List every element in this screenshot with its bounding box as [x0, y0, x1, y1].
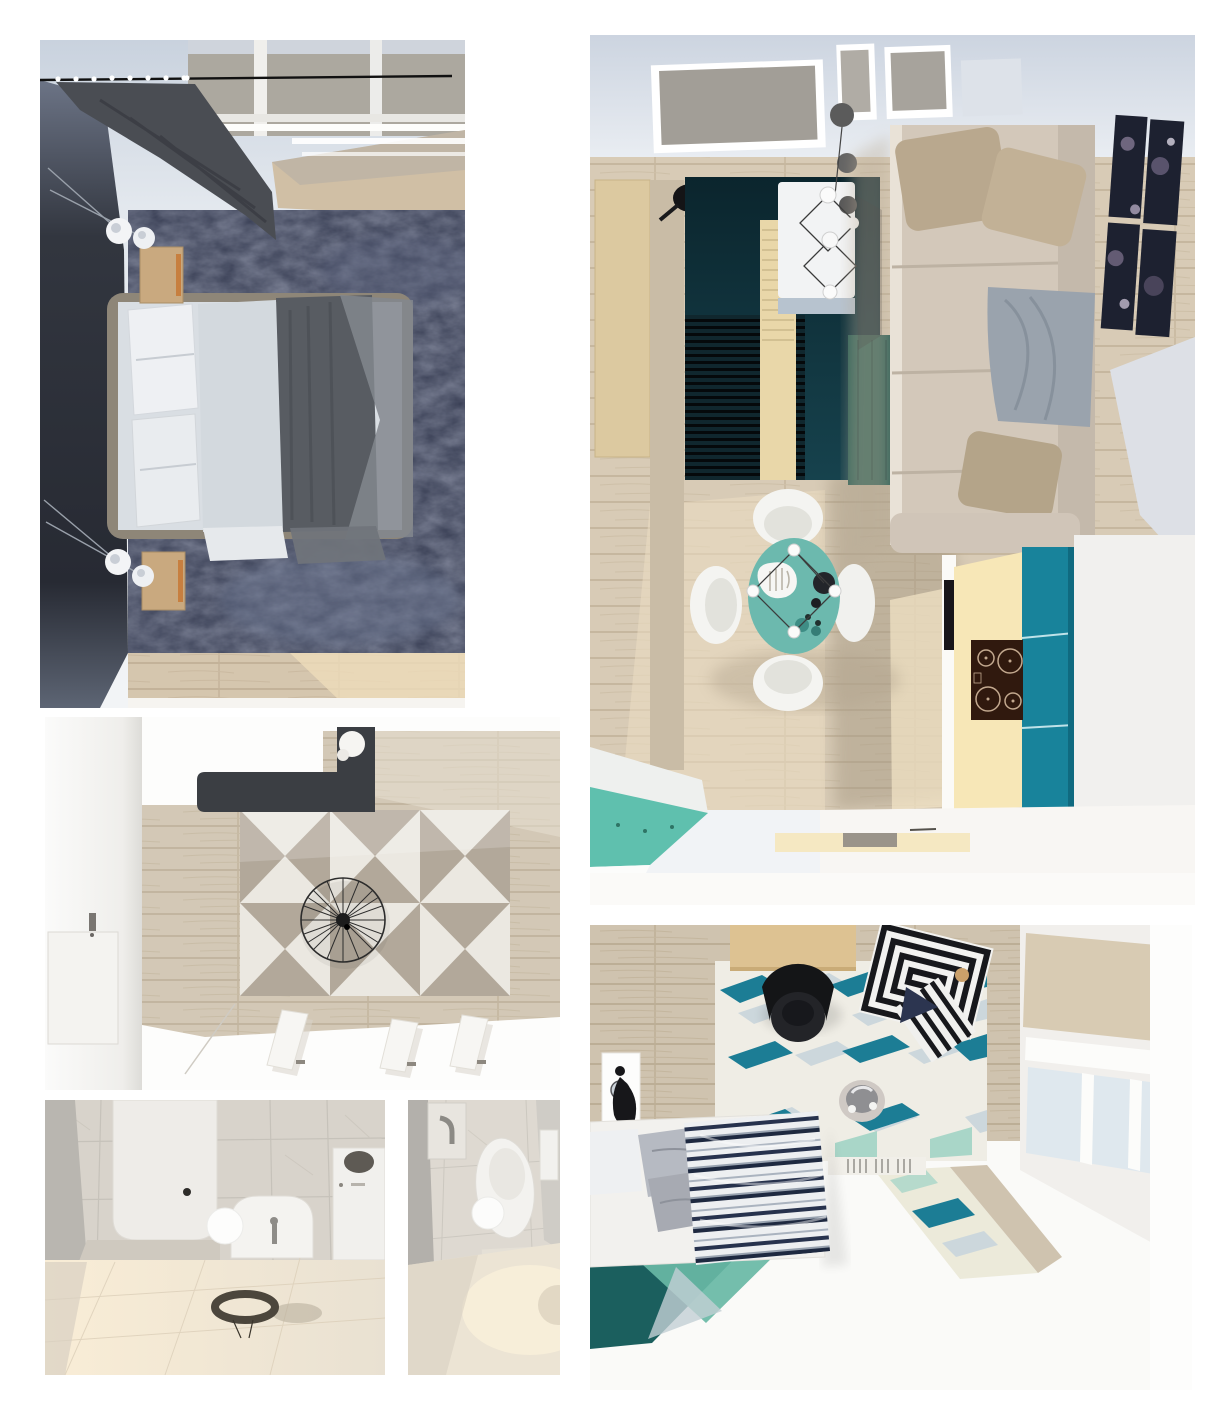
- panel-hallway: [45, 717, 560, 1090]
- panel-wc: [408, 1100, 560, 1375]
- nightstand: [140, 247, 183, 303]
- desk: [730, 925, 856, 971]
- rug-worn-patch: [220, 555, 460, 645]
- sphere-lamp: [207, 1208, 243, 1244]
- washer-door: [344, 1151, 374, 1173]
- sphere-lamp: [472, 1197, 504, 1229]
- cabinet-door: [843, 833, 897, 847]
- panel-bathroom: [45, 1100, 385, 1375]
- bath-floor: [45, 1260, 385, 1375]
- panel-living-room-kitchen: [590, 35, 1195, 905]
- hall-door: [48, 932, 118, 1044]
- bed2-white-pillow: [590, 1129, 642, 1195]
- sofa: [845, 125, 1095, 575]
- cooktop: [971, 640, 1023, 720]
- flush-panel: [540, 1130, 558, 1180]
- bedroom-floor-wedge: [272, 130, 465, 218]
- blanket-overhang: [290, 526, 386, 564]
- door-handle: [89, 913, 96, 931]
- bed: [107, 293, 413, 564]
- bed-2: [590, 1111, 848, 1267]
- bed2-striped-duvet: [684, 1111, 830, 1265]
- bed-sheet: [198, 300, 283, 532]
- panel-master-bedroom: [40, 40, 465, 708]
- bedroom-floor-strip: [128, 653, 465, 708]
- round-side-table: [839, 1080, 885, 1122]
- panel-second-bedroom: [590, 925, 1192, 1390]
- sheet-overhang: [203, 526, 288, 561]
- tub-drain: [183, 1188, 191, 1196]
- bathtub: [113, 1100, 217, 1240]
- hall-left-wall: [45, 717, 142, 1090]
- sofa-throw-blanket: [987, 287, 1095, 427]
- render-collage: [0, 0, 1228, 1402]
- panel-right-fade: [1150, 925, 1192, 1390]
- kitchen-right-wall: [1074, 535, 1195, 825]
- nightstand-2: [602, 1053, 640, 1126]
- washing-machine: [333, 1148, 385, 1260]
- faucet: [272, 1224, 277, 1244]
- bedroom-window: [188, 40, 465, 136]
- bedroom2-wood-right: [985, 945, 1022, 1170]
- toy-detail: [955, 968, 969, 982]
- kitchen: [942, 535, 1195, 825]
- wc-door-handle-plate: [428, 1103, 466, 1159]
- floor-vent: [828, 1157, 926, 1175]
- kitchen-cabinets: [1022, 547, 1074, 817]
- oven-slot: [944, 580, 954, 650]
